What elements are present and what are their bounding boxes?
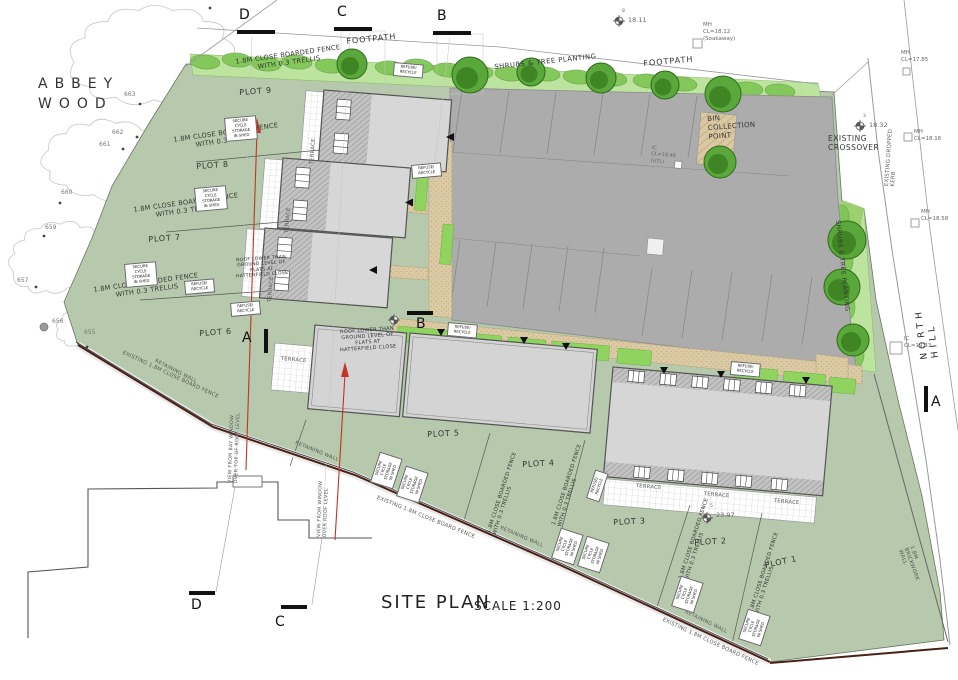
area-name-line1: ABBEY	[38, 76, 119, 93]
area-name-line2: WOOD	[38, 96, 113, 113]
survey-point-663: 663	[124, 91, 135, 98]
parking-structure-square	[647, 238, 664, 255]
benchmark-1832-value: 18.32	[869, 121, 888, 129]
section-marker-c-top: C	[337, 4, 347, 20]
survey-point-661: 661	[99, 141, 110, 148]
benchmark-1832-sup: 3	[863, 114, 866, 119]
plot3-label: PLOT 3	[613, 516, 646, 527]
benchmark-1811-sup: 8	[622, 9, 625, 14]
survey-point-662: 662	[112, 129, 123, 136]
refuse-box-p8: REFUSE/ RECYCLE	[411, 162, 442, 178]
section-leader-lines	[216, 487, 322, 604]
survey-point-655: 655	[84, 329, 95, 336]
benchmark-1811-value: 18.11	[628, 16, 647, 24]
cycle-store-box-p7: SECURE CYCLE STORAGE IN SHED	[124, 261, 158, 287]
plot5-label: PLOT 5	[427, 428, 460, 439]
section-marker-d-bottom: D	[191, 597, 202, 613]
roof-lower-note-1: ROOF LOWER THAN GROUND LEVEL OF FLATS AT…	[228, 254, 295, 280]
benchmark-symbol-1811	[613, 15, 625, 27]
survey-point-659: 659	[45, 224, 56, 231]
survey-point-657: 657	[17, 277, 28, 284]
drawing-scale: SCALE 1:200	[474, 599, 562, 613]
site-plan-drawing	[0, 0, 958, 680]
survey-point-656: 656	[52, 318, 63, 325]
existing-crossover-label: EXISTING CROSSOVER	[828, 135, 879, 153]
mh-1785-label: MH CL=17.85	[901, 50, 928, 64]
section-marker-c-bottom: C	[275, 614, 285, 630]
refuse-box-mid: REFUSE/ RECYCLE	[447, 322, 478, 338]
parking-area	[450, 88, 856, 368]
mh-soakaway-label: MH CL=18.12 (Soakaway)	[703, 22, 735, 43]
bin-collection-label: BIN COLLECTION POINT	[707, 112, 756, 142]
cycle-store-box-p9: SECURE CYCLE STORAGE IN SHED	[224, 115, 258, 141]
refuse-box-top: REFUSE/ RECYCLE	[393, 62, 424, 78]
section-marker-b-mid: B	[416, 316, 426, 332]
cycle-store-box-p8: SECURE CYCLE STORAGE IN SHED	[194, 185, 228, 211]
survey-point-660: 660	[61, 189, 72, 196]
ic-1933-label: IC CL=19.33	[904, 336, 931, 350]
section-marker-d-top: D	[239, 7, 250, 23]
benchmark-2397-sup: 5	[710, 504, 713, 509]
refuse-box-p7: REFUSE/ RECYCLE	[184, 278, 215, 294]
section-marker-b-top: B	[437, 8, 447, 24]
flats-block-east	[403, 333, 598, 433]
refuse-box-south: REFUSE/ RECYCLE	[730, 361, 761, 377]
section-marker-a-east: A	[931, 394, 941, 410]
ic-1848-label: IC CL=18.48 (UTL)	[650, 145, 676, 166]
benchmark-symbol-1832	[854, 120, 866, 132]
section-marker-a-west: A	[242, 330, 252, 346]
crossover-edge-line	[832, 62, 868, 95]
plot4-label: PLOT 4	[522, 458, 555, 469]
refuse-box-p6: REFUSE/ RECYCLE	[230, 300, 261, 316]
site-plan-canvas: ABBEY WOOD SITE PLAN SCALE 1:200 FOOTPAT…	[0, 0, 958, 680]
benchmark-2397-value: 23.97	[716, 511, 735, 519]
house-plot9	[300, 89, 451, 172]
house-plot8	[259, 157, 410, 240]
mh-1816-label: MH CL=18.16	[914, 129, 941, 143]
view-window-label: VIEW FROM WINDOW OVER ROOF LEVEL	[317, 481, 330, 538]
roof-lower-note-2: ROOF LOWER THAN GROUND LEVEL OF FLATS AT…	[331, 326, 404, 355]
mh-1858-label: MH CL=18.58	[921, 209, 948, 223]
